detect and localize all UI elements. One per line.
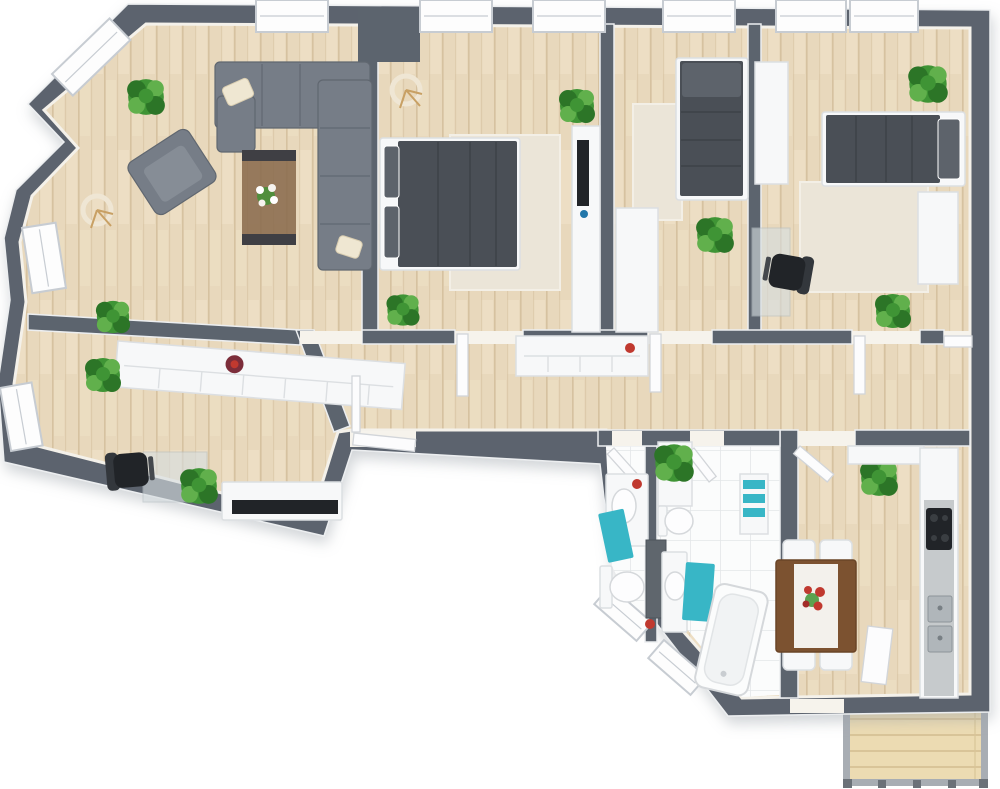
wall-chimney-block	[358, 8, 420, 62]
potted-plant	[559, 89, 595, 123]
red-decor	[645, 619, 655, 629]
media-wall-unit	[572, 126, 600, 332]
window	[533, 0, 605, 32]
vanity	[646, 540, 687, 632]
potted-plant	[96, 301, 130, 333]
potted-plant	[696, 217, 734, 253]
potted-plant	[386, 294, 419, 325]
floor-plan-render: 3D apartment floor plan, top-down render	[0, 0, 1000, 789]
toilet	[658, 506, 693, 536]
cooktop	[926, 508, 952, 550]
counter-right-run	[920, 448, 958, 698]
wall-bedroom1-bedroom2	[600, 24, 614, 334]
flower-vase	[256, 184, 278, 207]
wall-hallway-d	[920, 330, 944, 344]
potted-plant	[127, 79, 165, 115]
coffee-table	[242, 150, 296, 245]
door-leaf	[352, 376, 360, 432]
bookcase	[755, 62, 788, 184]
wc	[598, 474, 648, 608]
potted-plant	[85, 358, 121, 392]
wardrobe	[918, 192, 958, 284]
red-decor	[632, 479, 642, 489]
door-leaf	[650, 334, 661, 392]
single-bed	[822, 112, 965, 186]
potted-plant	[875, 294, 911, 328]
bedroom3-rug	[800, 182, 928, 292]
window	[776, 0, 846, 32]
potted-plant	[180, 468, 218, 504]
door-leaf	[854, 336, 865, 394]
deck-rail-right	[981, 700, 988, 786]
wall-hallway-a	[362, 330, 455, 344]
door-leaf	[944, 336, 972, 347]
potted-plant	[860, 460, 898, 496]
wall-hallway-c	[712, 330, 852, 344]
console-cabinet	[516, 336, 648, 376]
window	[256, 0, 328, 32]
door-leaf	[457, 334, 468, 396]
towel-shelf	[740, 474, 768, 534]
floor-plan-canvas: 3D apartment floor plan, top-down render	[0, 0, 1000, 789]
daybed-sofa	[676, 58, 748, 200]
dining-set	[776, 540, 856, 670]
wall-kitchen-top	[855, 430, 970, 446]
bedroom2-rug	[633, 104, 682, 220]
wardrobe	[616, 208, 658, 332]
red-decor-bowl	[625, 343, 635, 353]
media-bench	[222, 482, 342, 520]
window	[420, 0, 492, 32]
potted-plant	[908, 65, 948, 102]
counter-top-run	[848, 446, 924, 464]
potted-plant	[654, 444, 694, 481]
double-bed	[380, 138, 520, 270]
window	[850, 0, 918, 32]
window	[663, 0, 735, 32]
